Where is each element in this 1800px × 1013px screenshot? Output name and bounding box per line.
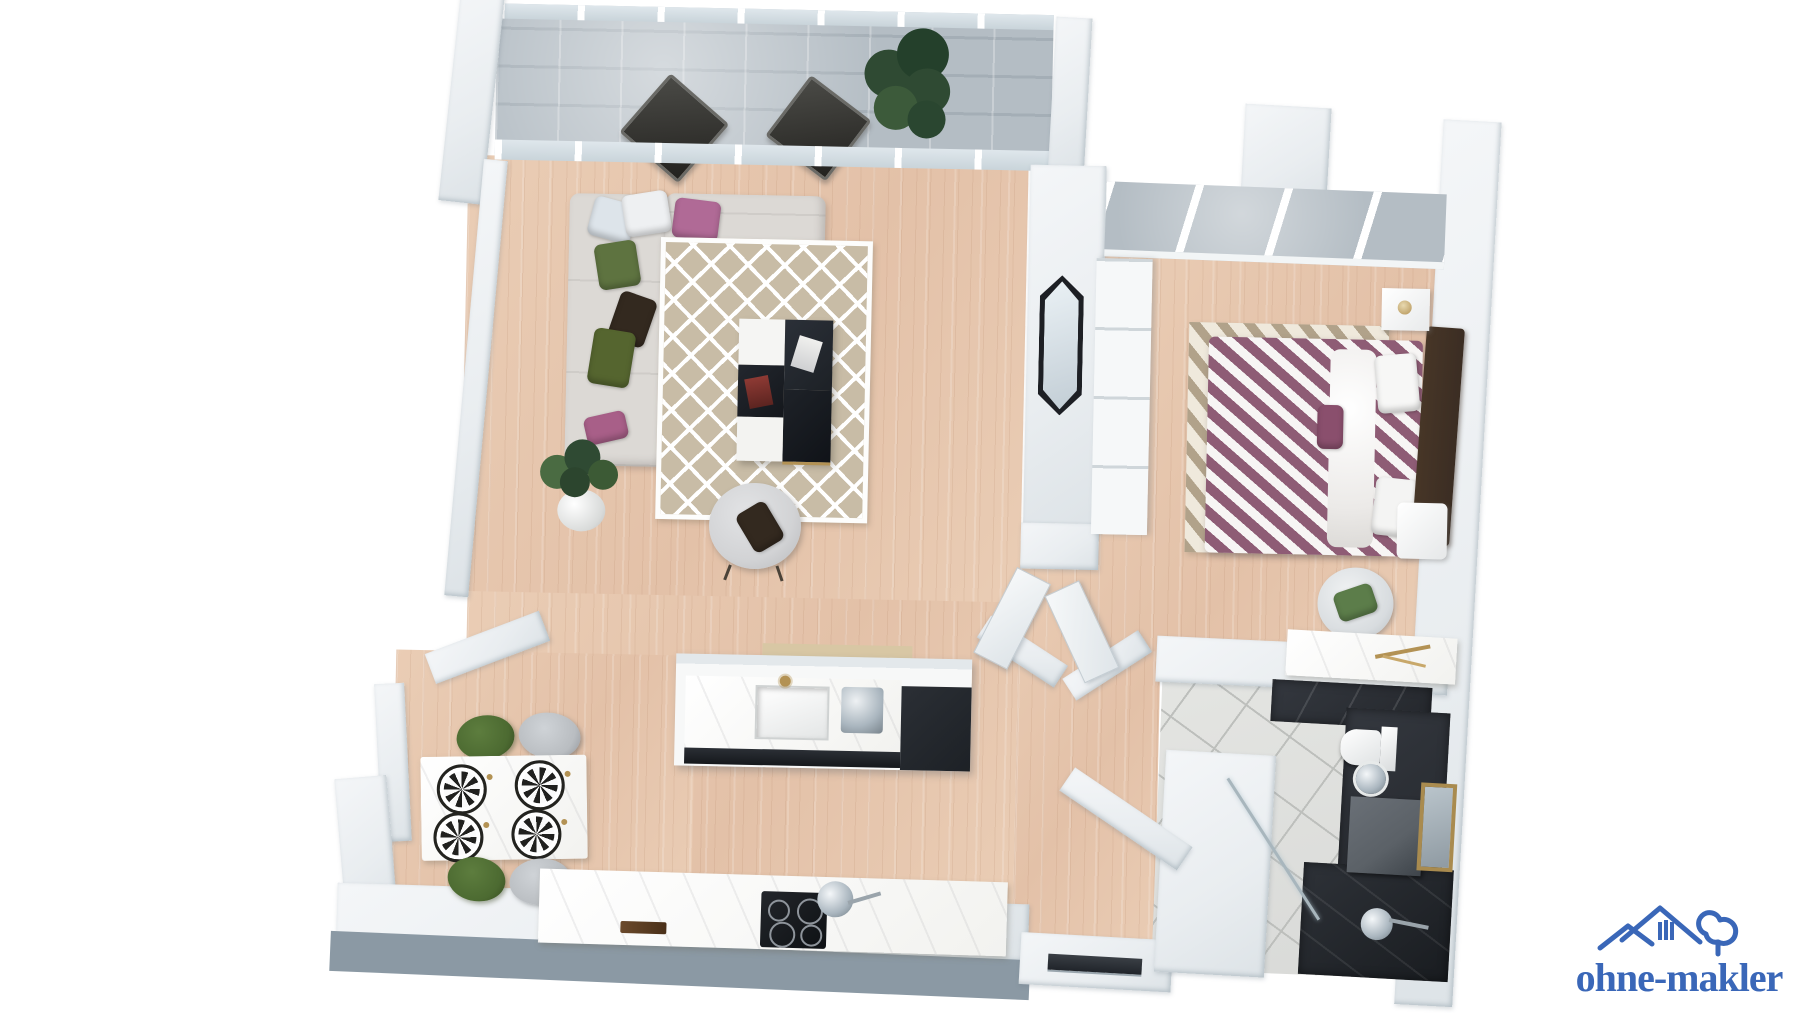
- armchair-pillow: [734, 499, 786, 554]
- kitchen-sink: [755, 685, 830, 741]
- pillow-green-2: [586, 327, 636, 389]
- plate: [514, 760, 565, 811]
- magazine-red: [744, 375, 773, 409]
- island-black-front: [684, 748, 900, 769]
- apartment: [0, 0, 1800, 1013]
- bed-pillow-white-1: [1374, 353, 1421, 414]
- cutlery-gold: [561, 819, 567, 825]
- cutlery-gold: [565, 771, 571, 777]
- bedroom-window-band: [1104, 181, 1447, 269]
- balcony-plant: [855, 19, 958, 146]
- coffee-machine: [841, 687, 884, 734]
- balcony-floor: [495, 3, 1054, 155]
- plate: [511, 809, 562, 860]
- pillow-green-1: [593, 239, 642, 291]
- pan: [817, 881, 854, 918]
- toilet-tank: [1379, 727, 1397, 772]
- cutlery-gold: [483, 822, 489, 828]
- wall-mirror: [1037, 275, 1084, 416]
- floor-plan-render: ohne-makler: [0, 0, 1800, 1013]
- ohne-makler-logo-icon: [1594, 896, 1764, 958]
- gold-framed-mirror: [1416, 782, 1457, 872]
- cutting-board: [620, 921, 666, 934]
- nightstand-top: [1381, 288, 1430, 331]
- cutlery-gold: [487, 774, 493, 780]
- shower-area: [1298, 862, 1454, 982]
- pillow-white: [621, 189, 673, 238]
- wall-partition-bottom: [1020, 523, 1099, 571]
- coffee-table: [736, 319, 833, 463]
- bed-pillow-purple: [1317, 405, 1344, 450]
- plate: [433, 812, 484, 863]
- bedroom-wardrobe: [1091, 258, 1153, 535]
- kitchen-counter: [538, 869, 1008, 957]
- desk: [1285, 629, 1457, 684]
- desk-chair-pillow-green: [1332, 582, 1380, 623]
- desk-decor-gold: [1382, 655, 1426, 668]
- shower-head: [1360, 907, 1394, 941]
- pillow-purple-chaise: [671, 197, 722, 242]
- wall-balcony-separator: [1048, 17, 1093, 177]
- table-lamp-gold: [1398, 300, 1412, 314]
- bed: [1205, 336, 1423, 556]
- kitchen-island: [674, 653, 972, 771]
- dining-table: [420, 755, 587, 861]
- pan-handle: [848, 891, 882, 904]
- ohne-makler-watermark: ohne-makler: [1566, 896, 1792, 1008]
- plate: [436, 764, 487, 815]
- bed-bench: [1396, 502, 1447, 559]
- balcony-balustrade: [498, 3, 1054, 30]
- ohne-makler-logo-text: ohne-makler: [1566, 958, 1792, 998]
- island-black-cabinet: [900, 686, 972, 771]
- bathroom-vanity: [1347, 796, 1425, 876]
- living-room-plant: [535, 436, 627, 538]
- shower-arm: [1389, 918, 1429, 930]
- magazine: [790, 335, 822, 373]
